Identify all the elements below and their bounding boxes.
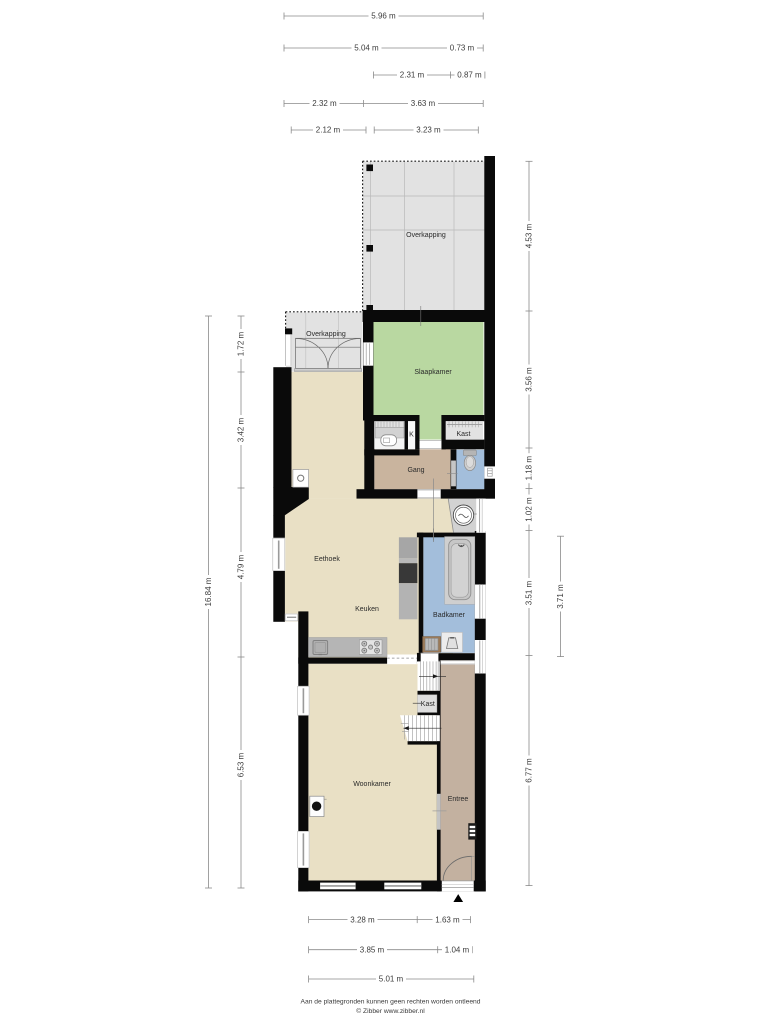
svg-text:Kast: Kast <box>456 431 470 438</box>
svg-text:16.84 m: 16.84 m <box>204 577 213 606</box>
svg-text:Badkamer: Badkamer <box>433 612 466 619</box>
svg-text:3.71 m: 3.71 m <box>556 584 565 609</box>
svg-text:© Zibber www.zibber.nl: © Zibber www.zibber.nl <box>356 1007 425 1015</box>
svg-text:Overkapping: Overkapping <box>306 331 346 338</box>
svg-text:5.01 m: 5.01 m <box>379 975 404 984</box>
svg-text:Slaapkamer: Slaapkamer <box>414 369 452 376</box>
svg-text:5.04 m: 5.04 m <box>354 44 379 53</box>
svg-text:3.23 m: 3.23 m <box>416 126 441 135</box>
svg-text:1.04 m: 1.04 m <box>445 945 470 954</box>
svg-text:Keuken: Keuken <box>355 606 379 613</box>
svg-text:3.51 m: 3.51 m <box>525 580 534 605</box>
svg-text:6.53 m: 6.53 m <box>237 752 246 777</box>
svg-text:Gang: Gang <box>407 467 424 474</box>
svg-text:Kast: Kast <box>421 701 435 708</box>
svg-text:1.02 m: 1.02 m <box>525 497 534 522</box>
svg-text:3.63 m: 3.63 m <box>411 99 436 108</box>
svg-text:3.85 m: 3.85 m <box>360 945 385 954</box>
svg-text:3.56 m: 3.56 m <box>525 367 534 392</box>
svg-text:6.77 m: 6.77 m <box>525 758 534 783</box>
svg-text:1.18 m: 1.18 m <box>525 456 534 481</box>
svg-text:Eethoek: Eethoek <box>314 556 340 563</box>
svg-text:0.87 m: 0.87 m <box>457 71 482 80</box>
svg-text:2.31 m: 2.31 m <box>400 71 425 80</box>
svg-text:Entree: Entree <box>448 796 469 803</box>
svg-text:1.63 m: 1.63 m <box>435 915 460 924</box>
svg-text:Woonkamer: Woonkamer <box>353 781 391 788</box>
svg-text:5.96 m: 5.96 m <box>371 12 396 21</box>
svg-text:Overkapping: Overkapping <box>406 232 446 239</box>
svg-text:0.73 m: 0.73 m <box>450 44 475 53</box>
svg-text:1.72 m: 1.72 m <box>237 331 246 356</box>
svg-text:4.79 m: 4.79 m <box>237 554 246 579</box>
svg-text:K: K <box>409 432 414 439</box>
svg-text:2.32 m: 2.32 m <box>312 99 337 108</box>
svg-text:4.53 m: 4.53 m <box>525 223 534 248</box>
svg-text:Aan de plattegronden kunnen ge: Aan de plattegronden kunnen geen rechten… <box>301 998 481 1005</box>
svg-text:3.42 m: 3.42 m <box>237 417 246 442</box>
svg-text:3.28 m: 3.28 m <box>350 915 375 924</box>
svg-text:2.12 m: 2.12 m <box>316 126 341 135</box>
